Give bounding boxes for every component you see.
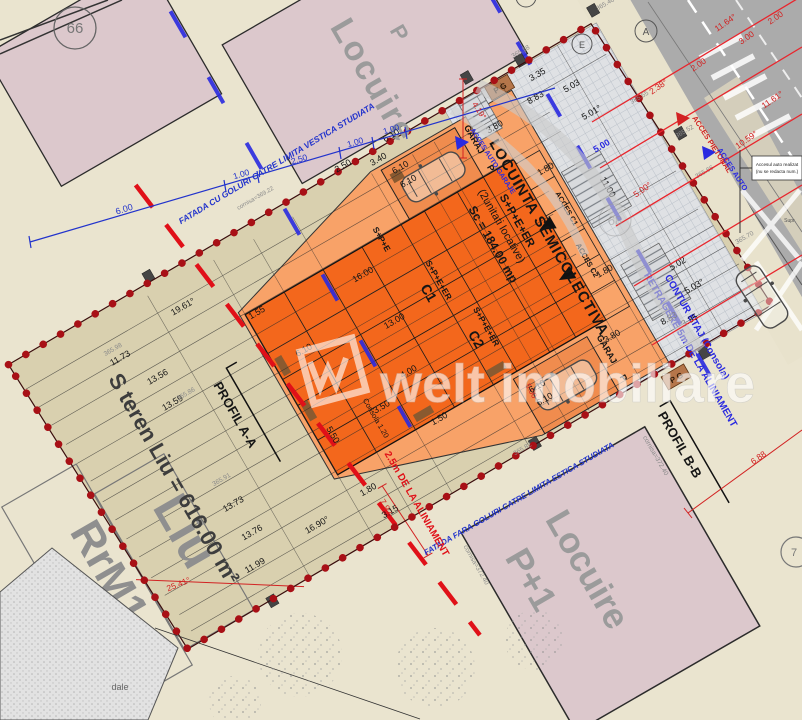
plan-label: Accesul auto realizat [756, 162, 799, 167]
plan-label: dale [111, 682, 128, 692]
plan-label: (nu se redacta num.) [756, 169, 799, 174]
plan-label: Supr. [784, 218, 796, 224]
plan-label: 68 [608, 213, 622, 228]
plan-label: A [643, 27, 650, 38]
plan-label: 7 [791, 547, 797, 559]
site-plan-page: LocuirePLiuRrM1S teren Liu = 616.00 m²P+… [0, 0, 802, 720]
plan-label: 66 [67, 20, 84, 37]
watermark-text: welt imobiliare [379, 354, 755, 414]
site-plan-svg: LocuirePLiuRrM1S teren Liu = 616.00 m²P+… [0, 0, 802, 720]
plan-label: E [579, 40, 585, 50]
